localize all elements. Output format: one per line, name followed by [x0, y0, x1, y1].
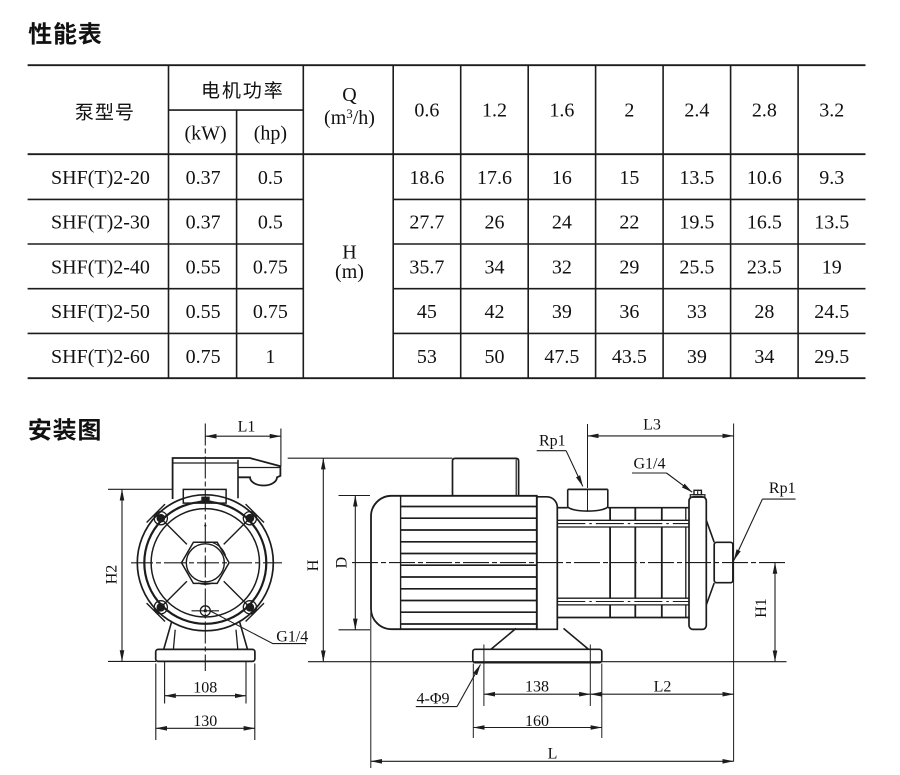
svg-text:D: D — [334, 557, 351, 569]
svg-text:L: L — [548, 746, 558, 763]
svg-text:2: 2 — [624, 100, 634, 122]
svg-text:26: 26 — [485, 212, 505, 234]
svg-text:39: 39 — [552, 301, 572, 323]
svg-text:34: 34 — [485, 256, 505, 278]
svg-text:0.55: 0.55 — [186, 301, 221, 323]
svg-text:G1/4: G1/4 — [634, 456, 666, 473]
svg-text:17.6: 17.6 — [477, 167, 512, 189]
svg-text:16.5: 16.5 — [747, 212, 782, 234]
svg-text:SHF(T)2-60: SHF(T)2-60 — [51, 346, 150, 368]
svg-text:29: 29 — [619, 256, 639, 278]
svg-text:18.6: 18.6 — [409, 167, 444, 189]
svg-text:0.6: 0.6 — [414, 100, 439, 122]
svg-text:0.75: 0.75 — [253, 301, 288, 323]
svg-text:47.5: 47.5 — [544, 346, 579, 368]
svg-text:(hp): (hp) — [254, 123, 287, 145]
svg-text:Rp1: Rp1 — [769, 480, 796, 497]
svg-text:0.75: 0.75 — [186, 346, 221, 368]
svg-text:42: 42 — [485, 301, 505, 323]
svg-text:24.5: 24.5 — [814, 301, 849, 323]
svg-text:0.5: 0.5 — [258, 212, 283, 234]
svg-text:0.55: 0.55 — [186, 256, 221, 278]
svg-text:108: 108 — [193, 679, 217, 696]
svg-text:G1/4: G1/4 — [276, 628, 308, 645]
svg-text:16: 16 — [552, 167, 572, 189]
svg-text:43.5: 43.5 — [612, 346, 647, 368]
svg-text:19: 19 — [822, 256, 842, 278]
svg-text:1.6: 1.6 — [549, 100, 574, 122]
svg-text:50: 50 — [485, 346, 505, 368]
svg-text:SHF(T)2-30: SHF(T)2-30 — [51, 212, 150, 234]
svg-text:1.2: 1.2 — [482, 100, 507, 122]
svg-text:H2: H2 — [104, 565, 121, 585]
svg-text:33: 33 — [687, 301, 707, 323]
svg-text:0.37: 0.37 — [186, 212, 221, 234]
svg-text:4-Φ9: 4-Φ9 — [417, 690, 450, 707]
svg-text:2.8: 2.8 — [752, 100, 777, 122]
svg-text:23.5: 23.5 — [747, 256, 782, 278]
svg-text:13.5: 13.5 — [679, 167, 714, 189]
svg-text:3.2: 3.2 — [819, 100, 844, 122]
svg-text:28: 28 — [754, 301, 774, 323]
svg-text:SHF(T)2-20: SHF(T)2-20 — [51, 167, 150, 189]
svg-text:L2: L2 — [654, 678, 672, 695]
svg-text:H: H — [305, 559, 322, 571]
svg-text:Q: Q — [342, 84, 357, 106]
svg-text:L1: L1 — [238, 419, 256, 436]
svg-text:34: 34 — [754, 346, 774, 368]
svg-text:22: 22 — [619, 212, 639, 234]
svg-text:2.4: 2.4 — [684, 100, 709, 122]
svg-text:25.5: 25.5 — [679, 256, 714, 278]
svg-text:9.3: 9.3 — [819, 167, 844, 189]
svg-text:Rp1: Rp1 — [539, 432, 566, 449]
svg-text:39: 39 — [687, 346, 707, 368]
svg-text:0.75: 0.75 — [253, 256, 288, 278]
svg-text:138: 138 — [525, 678, 549, 695]
svg-text:32: 32 — [552, 256, 572, 278]
svg-text:H1: H1 — [753, 598, 770, 618]
svg-text:29.5: 29.5 — [814, 346, 849, 368]
svg-text:35.7: 35.7 — [409, 256, 444, 278]
svg-text:L3: L3 — [643, 417, 661, 434]
svg-text:19.5: 19.5 — [679, 212, 714, 234]
svg-text:(kW): (kW) — [184, 123, 226, 145]
svg-text:1: 1 — [265, 346, 275, 368]
svg-text:15: 15 — [619, 167, 639, 189]
svg-text:160: 160 — [525, 713, 549, 730]
svg-text:13.5: 13.5 — [814, 212, 849, 234]
svg-text:0.5: 0.5 — [258, 167, 283, 189]
svg-text:SHF(T)2-40: SHF(T)2-40 — [51, 256, 150, 278]
svg-text:SHF(T)2-50: SHF(T)2-50 — [51, 301, 150, 323]
svg-text:53: 53 — [417, 346, 437, 368]
svg-text:27.7: 27.7 — [409, 212, 444, 234]
svg-text:(m): (m) — [335, 261, 364, 283]
svg-text:24: 24 — [552, 212, 572, 234]
svg-text:45: 45 — [417, 301, 437, 323]
svg-text:0.37: 0.37 — [186, 167, 221, 189]
svg-text:130: 130 — [193, 713, 217, 730]
svg-text:10.6: 10.6 — [747, 167, 782, 189]
svg-text:36: 36 — [619, 301, 639, 323]
